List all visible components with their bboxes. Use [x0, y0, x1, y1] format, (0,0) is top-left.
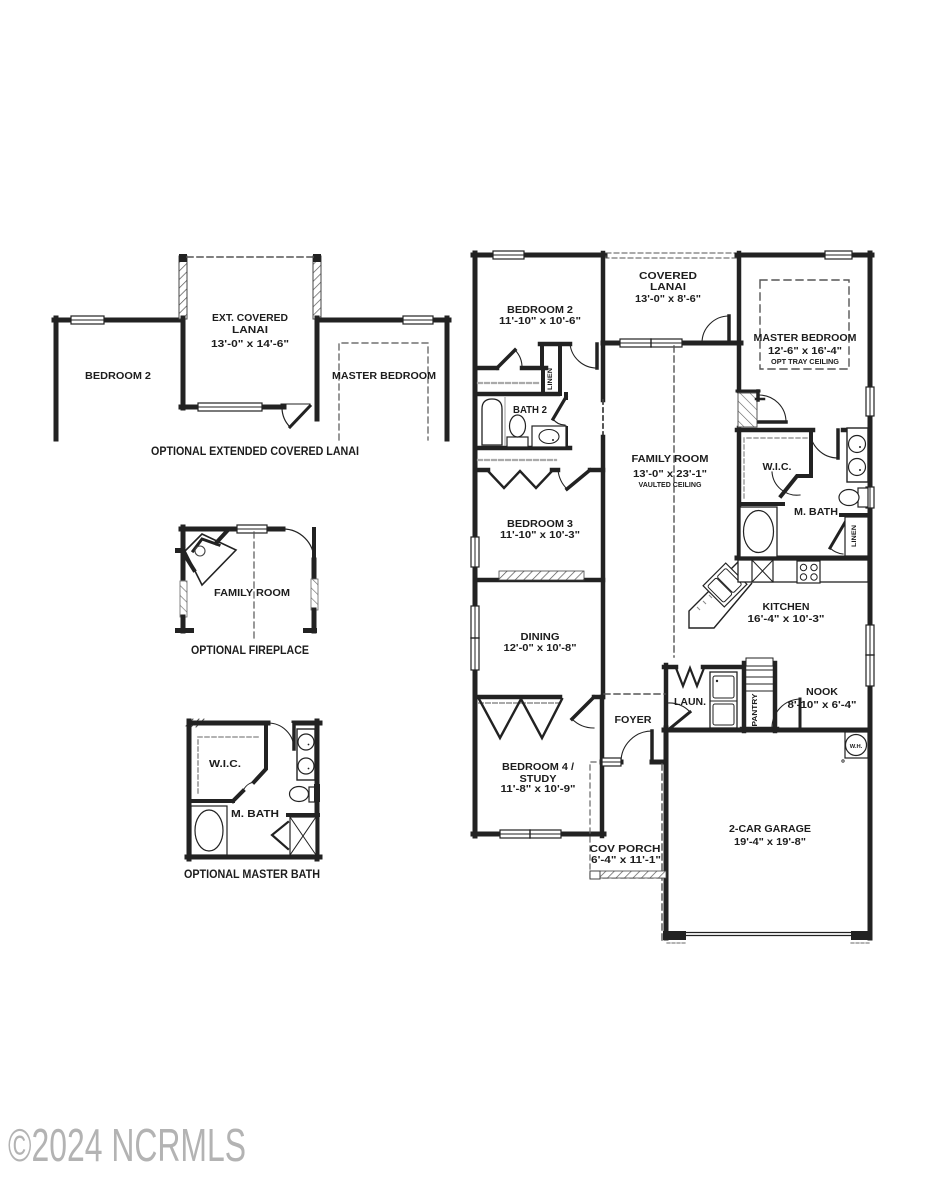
svg-text:OPTIONAL FIREPLACE: OPTIONAL FIREPLACE	[191, 645, 309, 657]
svg-text:2-CAR GARAGE: 2-CAR GARAGE	[729, 823, 811, 835]
svg-text:12'-0" x 10'-8": 12'-0" x 10'-8"	[504, 642, 577, 654]
svg-text:NOOK: NOOK	[806, 686, 838, 698]
svg-text:W.H.: W.H.	[850, 744, 863, 750]
svg-text:12'-6" x 16'-4": 12'-6" x 16'-4"	[768, 345, 842, 357]
svg-text:13'-0" x 8'-6": 13'-0" x 8'-6"	[635, 293, 701, 305]
svg-text:16'-4" x 10'-3": 16'-4" x 10'-3"	[748, 613, 825, 625]
svg-text:6'-4" x 11'-1": 6'-4" x 11'-1"	[591, 854, 661, 866]
svg-text:M. BATH: M. BATH	[794, 506, 838, 518]
svg-text:13'-0" x 23'-1": 13'-0" x 23'-1"	[633, 468, 707, 480]
svg-text:W.I.C.: W.I.C.	[763, 461, 792, 473]
svg-text:FAMILY ROOM: FAMILY ROOM	[214, 587, 290, 599]
svg-text:11'-8" x 10'-9": 11'-8" x 10'-9"	[501, 783, 576, 795]
svg-text:13'-0" x 14'-6": 13'-0" x 14'-6"	[211, 338, 289, 350]
svg-text:FOYER: FOYER	[615, 714, 652, 726]
svg-text:BATH 2: BATH 2	[513, 404, 547, 416]
svg-text:KITCHEN: KITCHEN	[763, 601, 810, 613]
svg-text:11'-10" x 10'-6": 11'-10" x 10'-6"	[499, 315, 581, 327]
svg-text:VAULTED CEILING: VAULTED CEILING	[639, 480, 702, 489]
svg-text:OPTIONAL MASTER BATH: OPTIONAL MASTER BATH	[184, 869, 320, 881]
svg-text:19'-4" x 19'-8": 19'-4" x 19'-8"	[734, 836, 806, 848]
svg-text:OPTIONAL EXTENDED COVERED LANA: OPTIONAL EXTENDED COVERED LANAI	[151, 446, 359, 458]
svg-text:LINEN: LINEN	[852, 525, 858, 547]
svg-text:8'-10" x 6'-4": 8'-10" x 6'-4"	[788, 699, 857, 711]
svg-text:©2024 NCRMLS: ©2024 NCRMLS	[8, 1119, 246, 1171]
svg-text:MASTER BEDROOM: MASTER BEDROOM	[332, 370, 436, 382]
svg-text:FAMILY ROOM: FAMILY ROOM	[632, 453, 709, 465]
svg-text:BEDROOM 2: BEDROOM 2	[85, 370, 151, 382]
svg-text:LINEN: LINEN	[547, 368, 554, 390]
svg-text:11'-10" x 10'-3": 11'-10" x 10'-3"	[500, 529, 580, 541]
svg-text:BEDROOM 4 /: BEDROOM 4 /	[502, 761, 574, 773]
svg-text:LAUN.: LAUN.	[674, 696, 706, 708]
svg-text:W.I.C.: W.I.C.	[209, 758, 241, 770]
svg-text:M. BATH: M. BATH	[231, 808, 279, 820]
svg-text:OPT TRAY CEILING: OPT TRAY CEILING	[771, 357, 839, 366]
svg-text:PANTRY: PANTRY	[750, 694, 759, 727]
svg-text:MASTER BEDROOM: MASTER BEDROOM	[754, 332, 857, 344]
svg-text:LANAI: LANAI	[232, 324, 268, 336]
svg-text:LANAI: LANAI	[650, 281, 686, 293]
svg-text:EXT. COVERED: EXT. COVERED	[212, 312, 288, 324]
